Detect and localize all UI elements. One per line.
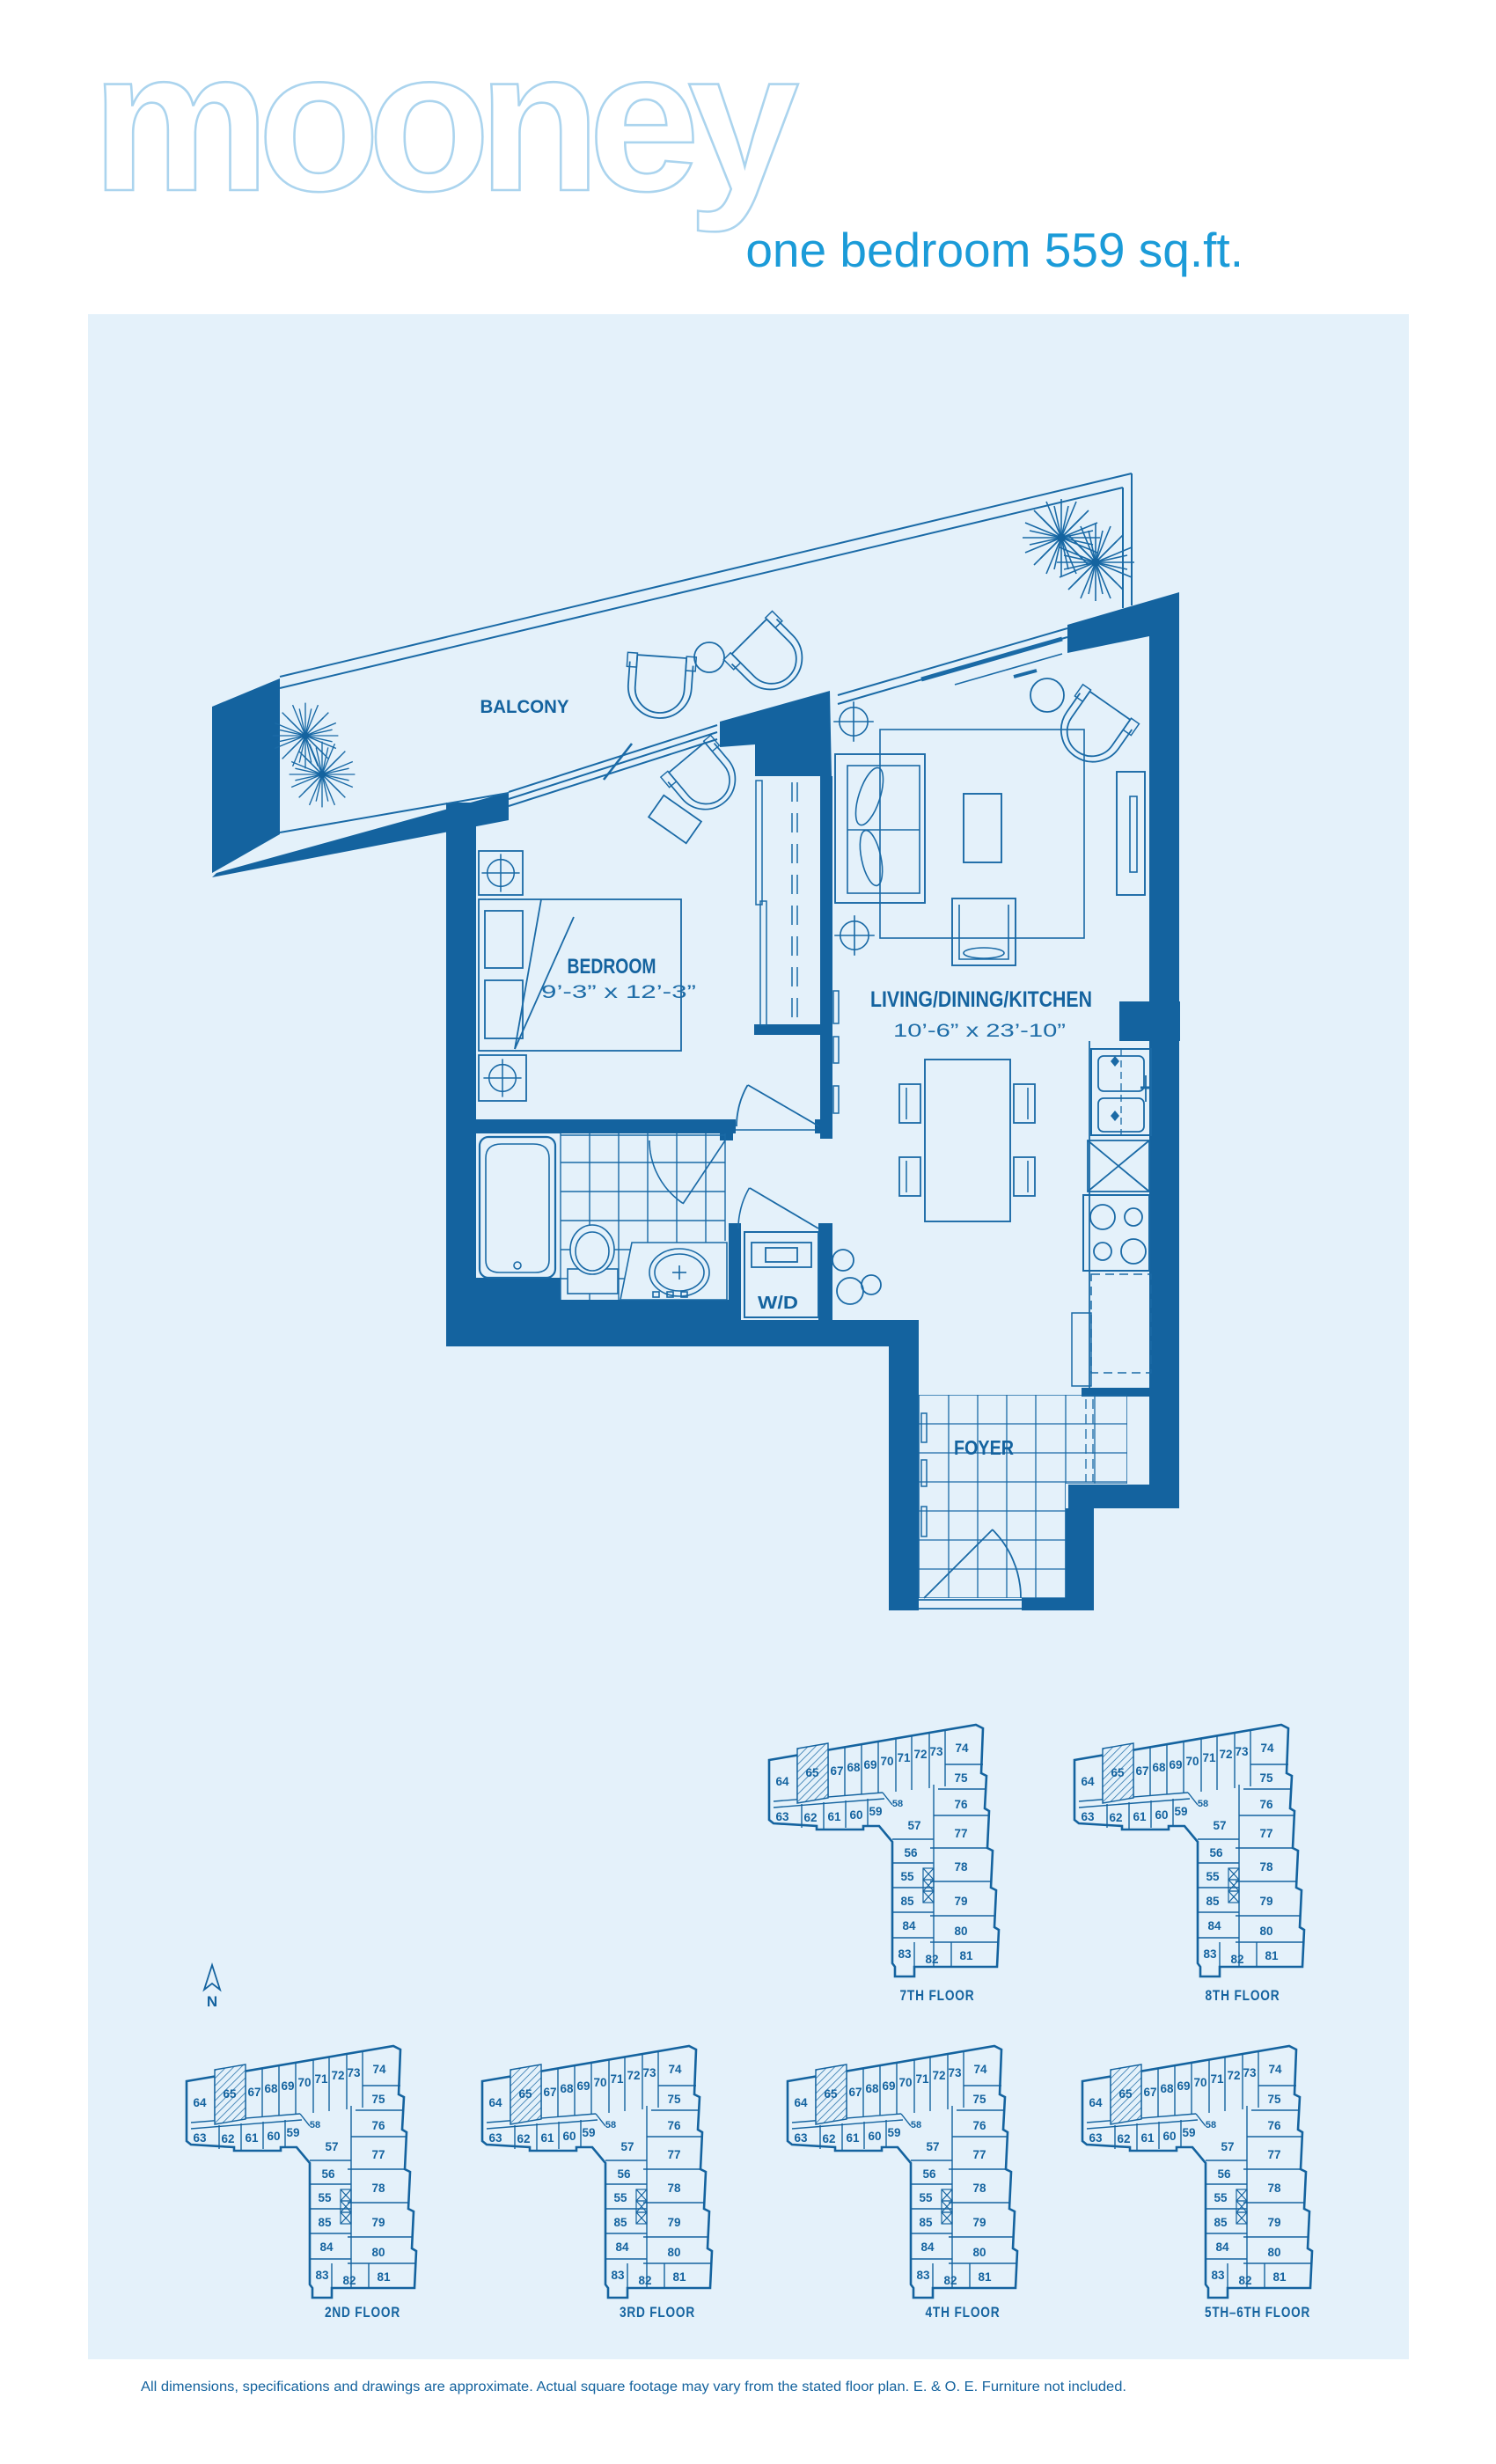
svg-text:W/D: W/D [758,1294,798,1313]
svg-text:N: N [207,1993,217,2010]
svg-text:9’-3” x 12’-3”: 9’-3” x 12’-3” [541,982,696,1002]
svg-text:BEDROOM: BEDROOM [568,955,656,979]
svg-text:All dimensions, specifications: All dimensions, specifications and drawi… [141,2380,1126,2394]
svg-text:7TH FLOOR: 7TH FLOOR [900,1987,975,2004]
svg-text:5TH–6TH FLOOR: 5TH–6TH FLOOR [1205,2304,1310,2321]
svg-text:4TH FLOOR: 4TH FLOOR [926,2304,1001,2321]
svg-text:8TH FLOOR: 8TH FLOOR [1206,1987,1280,2004]
svg-text:10’-6” x 23’-10”: 10’-6” x 23’-10” [893,1021,1066,1041]
svg-text:2ND FLOOR: 2ND FLOOR [325,2304,400,2321]
svg-text:BALCONY: BALCONY [480,697,569,717]
svg-text:LIVING/DINING/KITCHEN: LIVING/DINING/KITCHEN [870,987,1092,1012]
svg-text:3RD FLOOR: 3RD FLOOR [620,2304,695,2321]
svg-text:mooney: mooney [92,10,798,233]
svg-text:FOYER: FOYER [954,1436,1014,1459]
svg-text:one bedroom 559 sq.ft.: one bedroom 559 sq.ft. [745,223,1243,277]
